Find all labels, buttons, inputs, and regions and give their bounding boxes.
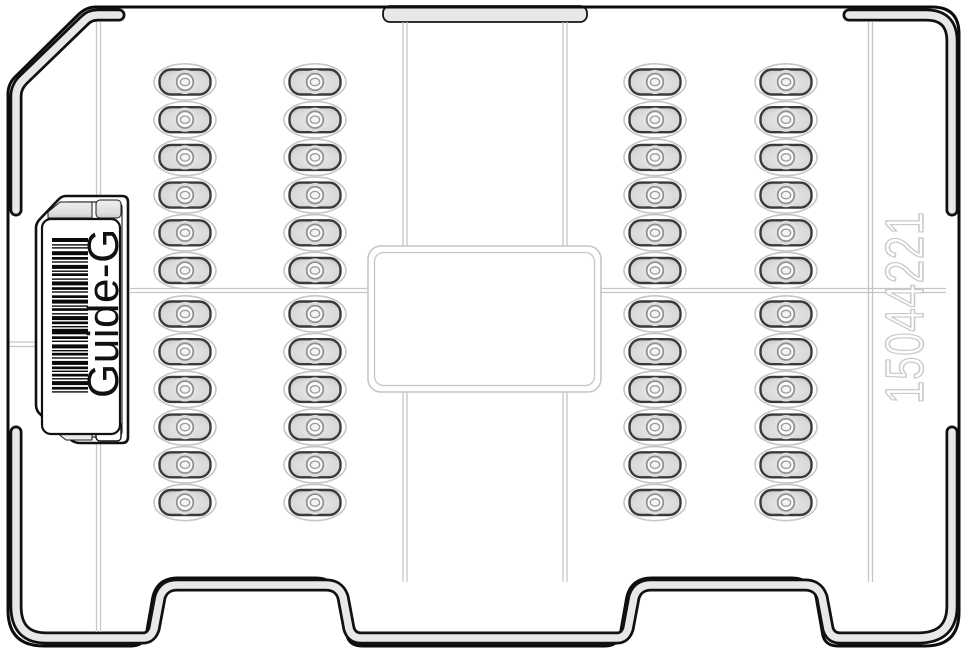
serial-number: 15044221 [875,211,935,404]
well [284,409,346,445]
well [624,484,686,520]
well [154,447,216,483]
well [284,64,346,100]
well [284,102,346,138]
well [624,447,686,483]
well [755,215,817,251]
well [154,409,216,445]
well [154,334,216,370]
well [624,139,686,175]
well [284,139,346,175]
well [624,252,686,288]
well [284,296,346,332]
well [284,215,346,251]
well [154,296,216,332]
label-top-clip-right [96,200,121,218]
well [154,484,216,520]
well [755,371,817,407]
center-window [368,246,601,392]
well [284,447,346,483]
well [755,447,817,483]
well [624,64,686,100]
well [154,64,216,100]
well [284,252,346,288]
well [755,64,817,100]
well [624,371,686,407]
well [284,484,346,520]
well [755,409,817,445]
well [624,215,686,251]
well [154,177,216,213]
well [624,177,686,213]
well [755,484,817,520]
well [154,139,216,175]
well [284,177,346,213]
label-text: Guide-G [79,228,128,398]
well [624,409,686,445]
well [284,371,346,407]
label-holder: Guide-G [36,196,128,443]
well [154,371,216,407]
well [755,139,817,175]
well [755,177,817,213]
well [624,296,686,332]
well [284,334,346,370]
well [624,102,686,138]
well [624,334,686,370]
well [154,252,216,288]
well [755,334,817,370]
tray-diagram: 15044221 Guide-G [0,0,969,651]
well [755,296,817,332]
well [154,102,216,138]
well [755,252,817,288]
well [154,215,216,251]
well [755,102,817,138]
